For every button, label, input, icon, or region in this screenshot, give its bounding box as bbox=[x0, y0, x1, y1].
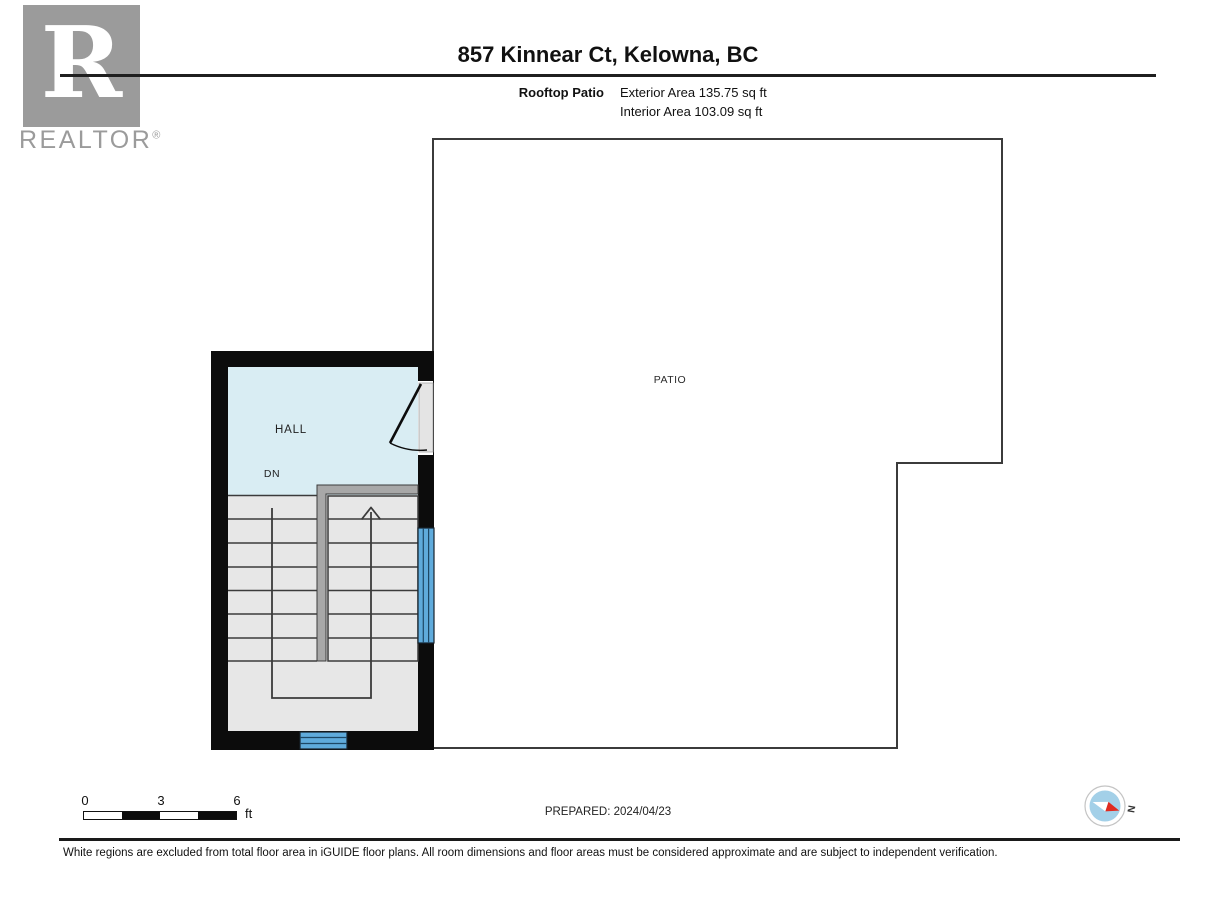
window-bottom bbox=[300, 732, 347, 749]
patio-label: PATIO bbox=[654, 374, 686, 386]
patio-outline bbox=[433, 139, 1002, 748]
floorplan-page: R REALTOR® 857 Kinnear Ct, Kelowna, BC R… bbox=[0, 0, 1216, 912]
compass-north-label: N bbox=[1124, 804, 1136, 813]
footer-divider bbox=[59, 838, 1180, 841]
hall-floor bbox=[228, 367, 418, 495]
floorplan-drawing: PATIO bbox=[0, 0, 1216, 912]
window-right bbox=[418, 528, 434, 643]
compass-icon: N bbox=[1080, 782, 1142, 834]
hall-label: HALL bbox=[275, 424, 307, 436]
prepared-date: PREPARED: 2024/04/23 bbox=[0, 806, 1216, 818]
down-label: DN bbox=[264, 468, 280, 480]
door-sill bbox=[419, 383, 433, 452]
disclaimer-text: White regions are excluded from total fl… bbox=[63, 847, 998, 859]
